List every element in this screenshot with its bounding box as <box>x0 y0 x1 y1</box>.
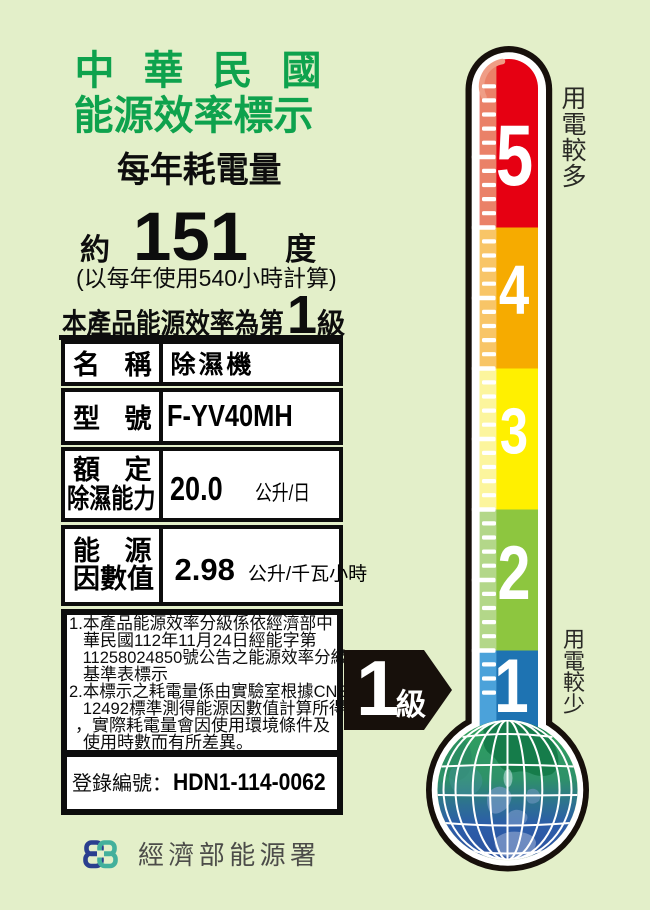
svg-text:3: 3 <box>500 396 528 468</box>
svg-text:級: 級 <box>396 688 426 722</box>
svg-text:4: 4 <box>499 252 529 330</box>
svg-text:2: 2 <box>498 531 531 616</box>
svg-text:1: 1 <box>356 644 399 732</box>
svg-text:1: 1 <box>494 643 529 728</box>
svg-text:5: 5 <box>496 108 533 204</box>
